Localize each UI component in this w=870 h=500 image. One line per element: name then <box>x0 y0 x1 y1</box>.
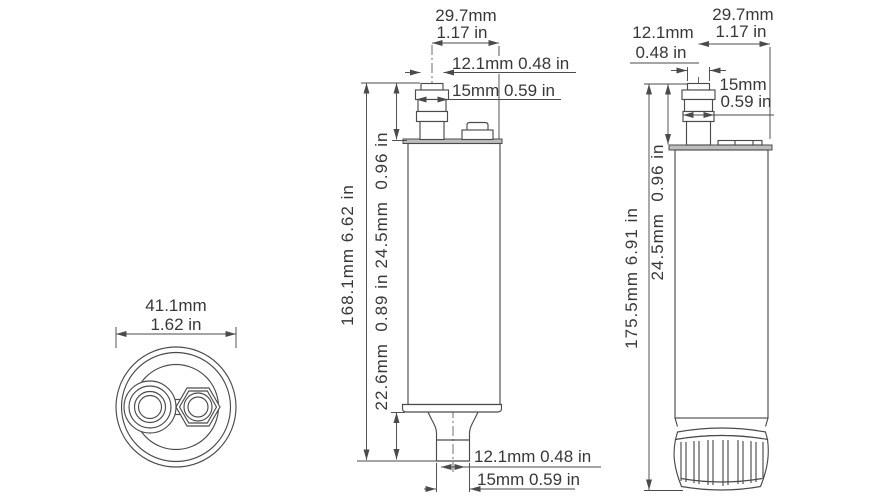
inlet-barb <box>682 84 715 146</box>
top-view-diameter-mm: 41.1mm <box>145 296 206 315</box>
intake-strainer <box>674 436 768 491</box>
front-view: 29.7mm 1.17 in 12.1mm 0.48 in 15mm 0.59 … <box>338 6 601 492</box>
side-overall-height-label: 175.5mm 6.91 in <box>622 207 641 349</box>
side-inlet-height-label: 24.5mm 0.96 in <box>648 144 667 281</box>
front-overall-height-label: 168.1mm 6.62 in <box>338 184 357 326</box>
side-top-plate <box>669 145 772 150</box>
outlet-port-rings <box>124 381 176 433</box>
pump-end-outline <box>116 347 236 467</box>
front-spout-height-dimension <box>391 413 405 460</box>
side-inlet-offset-in: 1.17 in <box>715 22 766 41</box>
side-top-tab <box>718 141 762 146</box>
front-spout-height-label: 22.6mm 0.89 in <box>372 274 391 411</box>
front-spout-outer-label: 15mm 0.59 in <box>477 470 580 489</box>
side-inlet-inner-in: 0.48 in <box>635 43 686 62</box>
top-view-diameter-in: 1.62 in <box>150 315 201 334</box>
side-inlet-outer-in: 0.59 in <box>720 92 771 111</box>
side-inlet-inner-dimension <box>630 63 726 81</box>
front-outlet-height-dimension <box>392 83 407 141</box>
front-outlet-inner-label: 12.1mm 0.48 in <box>452 54 569 73</box>
front-spout-inner-label: 12.1mm 0.48 in <box>474 447 591 466</box>
side-pump-body <box>675 150 768 418</box>
front-outlet-offset-in: 1.17 in <box>436 23 487 42</box>
side-view: 12.1mm 0.48 in 29.7mm 1.17 in 15mm 0.59 … <box>622 5 774 491</box>
top-button <box>462 123 493 140</box>
bottom-rim <box>403 405 502 413</box>
front-outlet-height-label: 24.5mm 0.96 in <box>372 132 391 269</box>
top-view: 41.1mm 1.62 in <box>116 296 236 467</box>
pump-body <box>408 144 500 405</box>
side-inlet-inner-mm: 12.1mm <box>632 23 693 42</box>
pump-dimension-drawing: 41.1mm 1.62 in <box>0 0 870 500</box>
nut-boss <box>176 388 220 426</box>
outlet-barb <box>416 84 449 140</box>
front-outlet-outer-label: 15mm 0.59 in <box>452 81 555 100</box>
